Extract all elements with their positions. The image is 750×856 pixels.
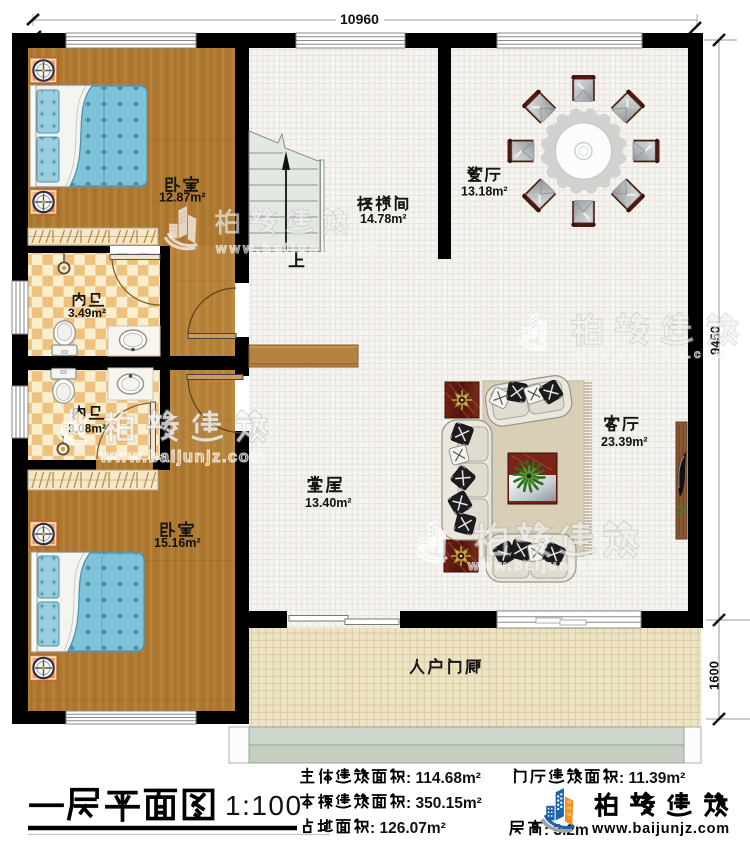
svg-text:1:100: 1:100 — [225, 790, 303, 821]
svg-text:: 11.39m²: : 11.39m² — [619, 770, 685, 787]
svg-text:13.40m²: 13.40m² — [305, 496, 352, 510]
svg-text:www.baijunjz.com: www.baijunjz.com — [215, 241, 381, 256]
svg-text:: 126.07m²: : 126.07m² — [370, 820, 446, 837]
svg-text:15.16m²: 15.16m² — [154, 536, 201, 550]
svg-text:14.78m²: 14.78m² — [360, 212, 407, 226]
svg-text:12.87m²: 12.87m² — [159, 191, 206, 205]
svg-text:www.baijunjz.com: www.baijunjz.com — [575, 347, 728, 361]
svg-text:www.baijunjz.com: www.baijunjz.com — [467, 557, 629, 573]
svg-text:: 350.15m²: : 350.15m² — [406, 795, 482, 812]
svg-text:www.baijunjz.com: www.baijunjz.com — [591, 821, 730, 837]
svg-text:10960: 10960 — [340, 11, 379, 27]
svg-text:1600: 1600 — [707, 661, 722, 690]
svg-text:: 114.68m²: : 114.68m² — [406, 770, 481, 787]
svg-text:13.18m²: 13.18m² — [461, 185, 508, 199]
svg-text:www.baijunjz.com: www.baijunjz.com — [99, 448, 266, 466]
svg-text:3.49m²: 3.49m² — [68, 306, 106, 320]
svg-text:23.39m²: 23.39m² — [601, 435, 648, 449]
